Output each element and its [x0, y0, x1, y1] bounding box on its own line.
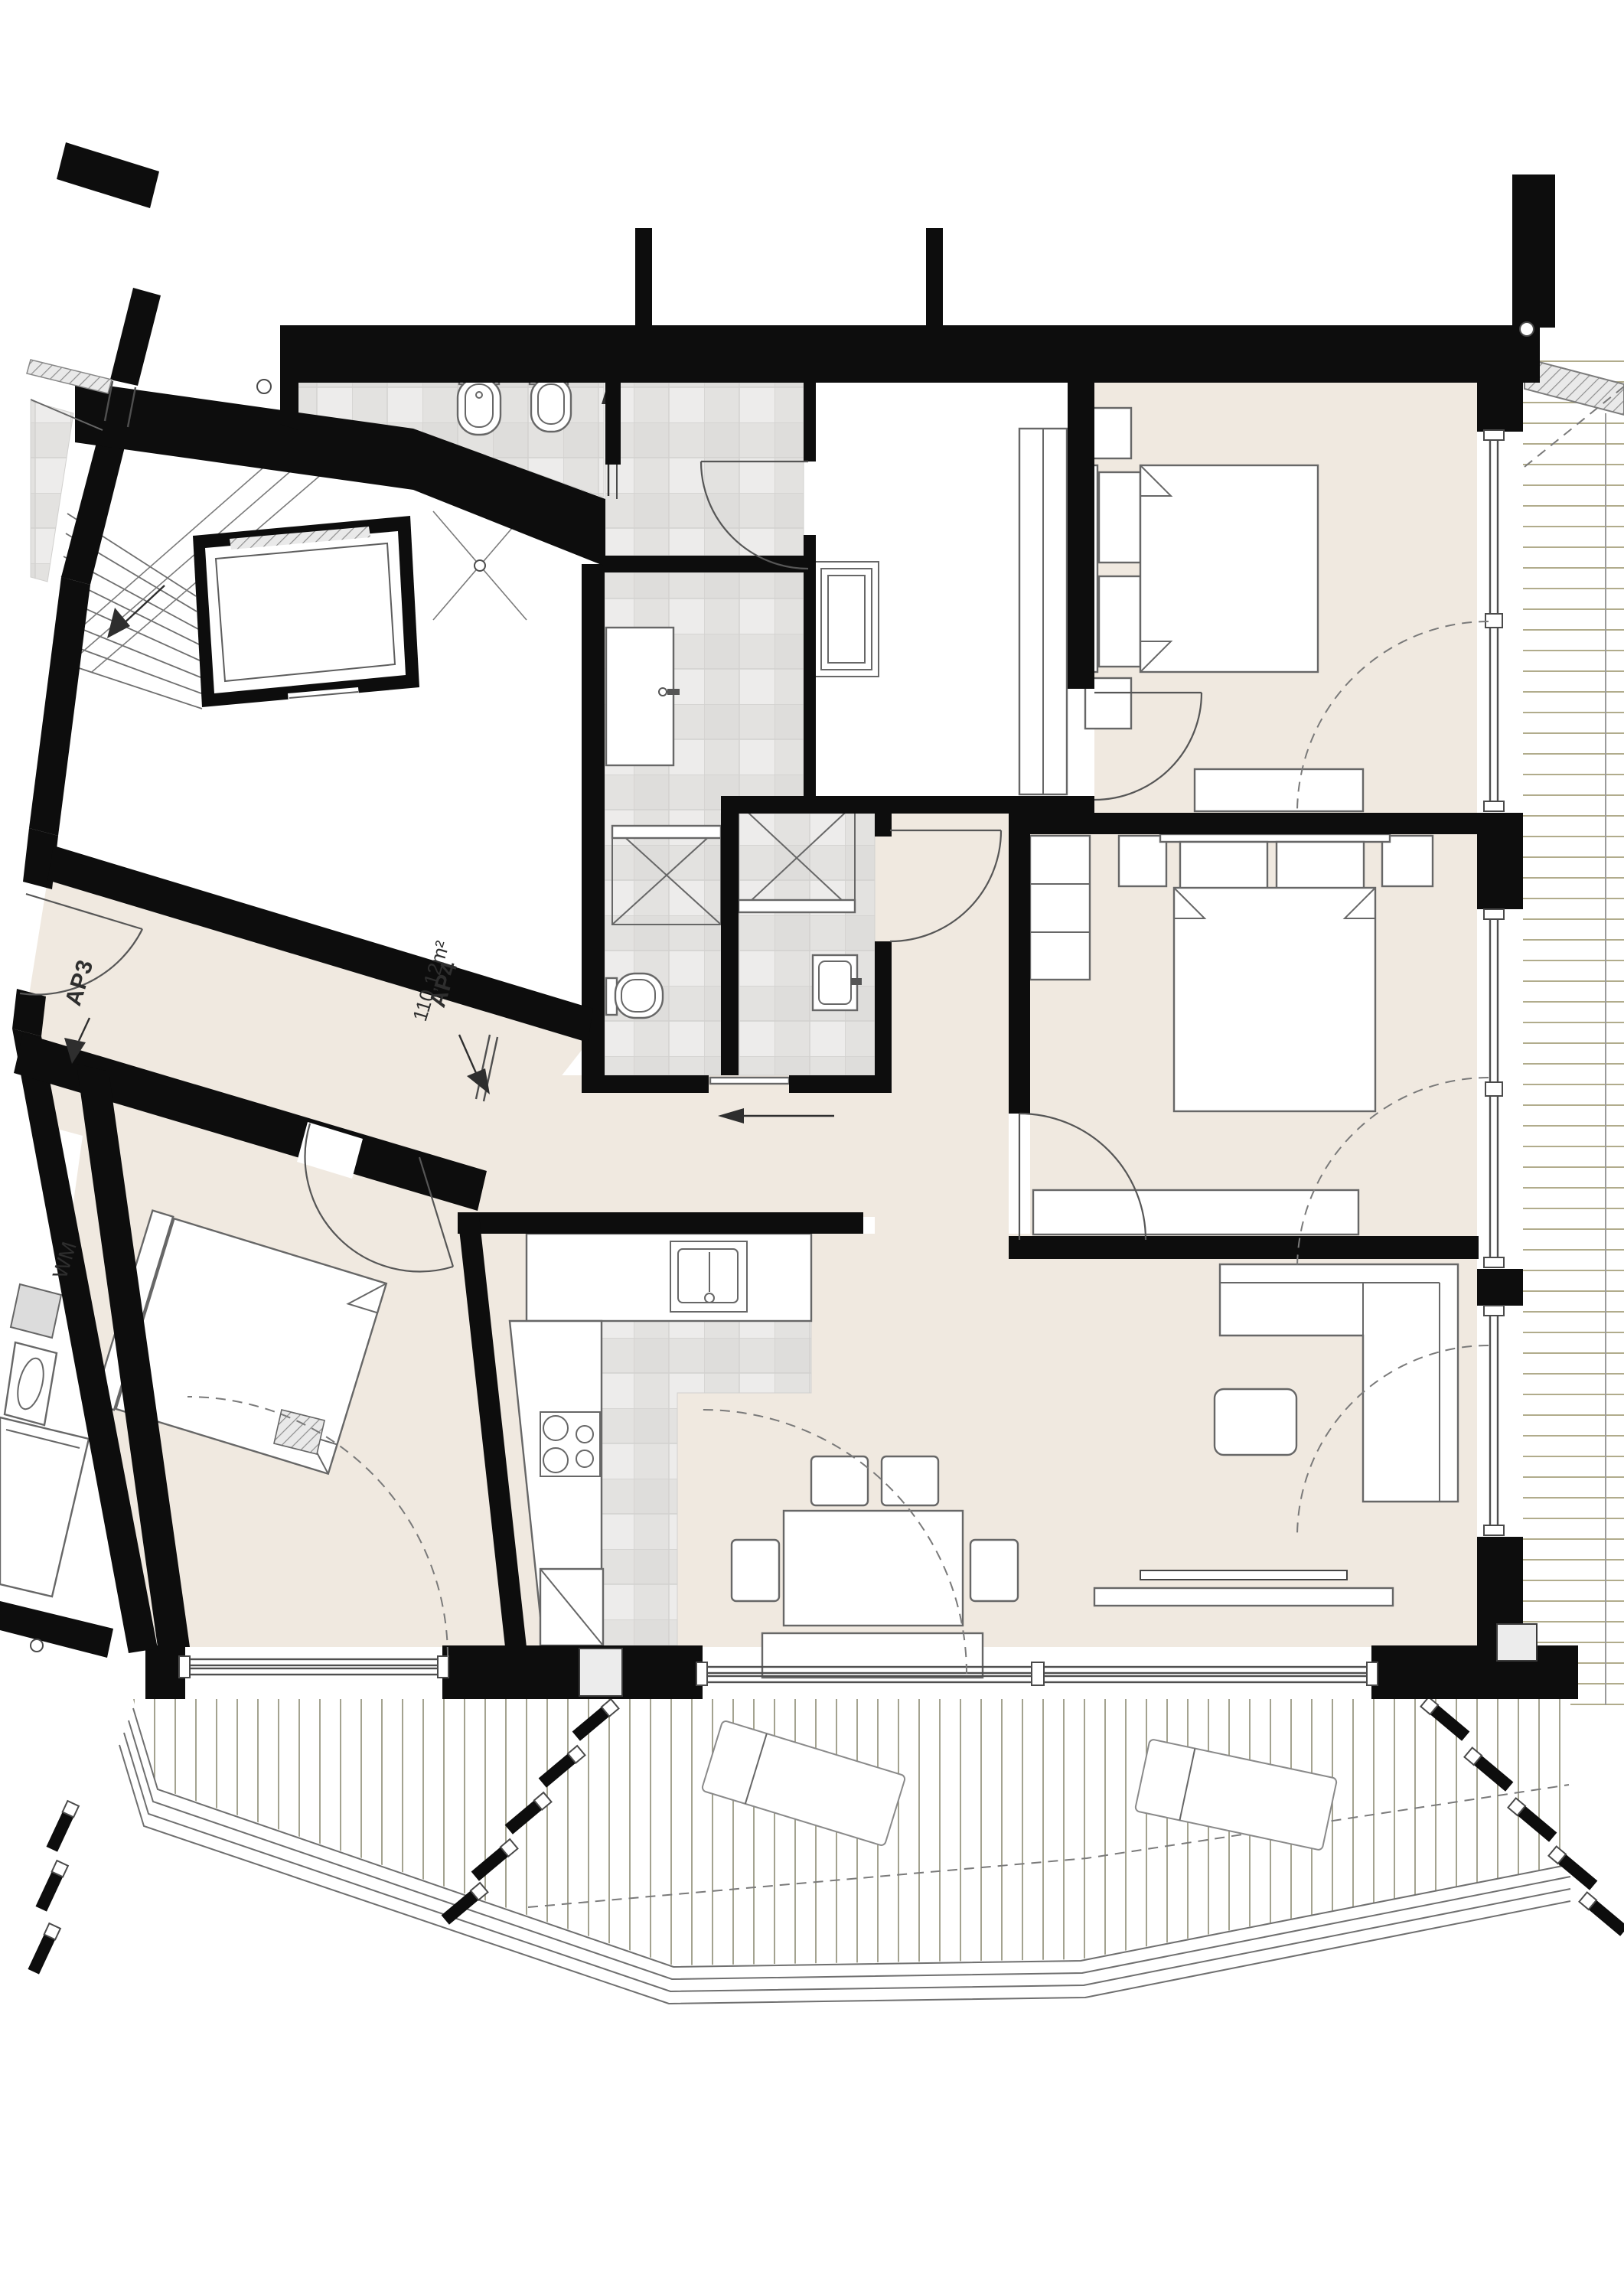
wing-wall	[57, 142, 159, 208]
tv-console	[1094, 1588, 1393, 1606]
bed-mattress	[1174, 888, 1375, 1111]
wc2-icon	[606, 974, 663, 1018]
top-wall-stub	[635, 228, 652, 328]
kitchen-counter-top	[527, 1234, 811, 1321]
axis-marker	[257, 380, 271, 393]
dresser	[1195, 769, 1363, 811]
elevator	[193, 516, 419, 710]
axis-marker	[31, 1639, 43, 1652]
walkin-bottom-wall	[721, 796, 1094, 814]
shower-right-wall	[875, 814, 892, 837]
bedroom1-left-wall	[1068, 383, 1094, 689]
top-wall-stub	[926, 228, 943, 328]
pillow	[1099, 472, 1140, 563]
bottom-wall-segment	[1371, 1645, 1578, 1699]
hall-floor	[875, 814, 1009, 1236]
tv-icon	[1140, 1570, 1347, 1580]
right-wall-segment	[1477, 813, 1523, 909]
sanitary-bottom-wall	[582, 1075, 709, 1093]
neighbor-bed-fragment	[0, 1417, 89, 1596]
coffee-table	[1215, 1389, 1296, 1455]
vanity-counter	[606, 628, 673, 765]
bath1-divider-wall	[605, 365, 621, 465]
nightstand	[1119, 836, 1166, 886]
pillow	[1099, 576, 1140, 667]
bath2-top-wall	[602, 556, 814, 572]
bedroom2-left-wall	[1009, 834, 1030, 1114]
dining-table	[784, 1511, 963, 1626]
bedroom2-bottom-wall	[1009, 1236, 1479, 1259]
dining-chair	[732, 1540, 779, 1601]
bottom-wall-segment	[442, 1645, 703, 1699]
bath2-left-wall	[582, 564, 605, 1075]
dining-chair	[811, 1456, 868, 1505]
vestibule-floor	[605, 383, 804, 556]
top-wall	[280, 325, 1540, 383]
top-right-block	[1512, 174, 1555, 328]
dining-chair	[970, 1540, 1018, 1601]
dining-bench	[762, 1633, 983, 1678]
wardrobe	[1030, 836, 1090, 980]
washbasin-icon	[813, 955, 862, 1010]
bed-headboard	[1160, 834, 1390, 842]
nightstand	[1382, 836, 1433, 886]
right-balcony-deck	[1523, 348, 1624, 1707]
floor-plan-drawing: AP3 AP4 110,12m² WM	[0, 0, 1624, 2296]
right-wall-segment	[1477, 1269, 1523, 1306]
column-hatch	[1497, 1624, 1537, 1661]
kitchen-wall	[458, 1212, 863, 1234]
neighbor-wall-fragment	[0, 1601, 113, 1658]
washing-machine-icon	[11, 1284, 61, 1338]
stair-void-marker	[474, 560, 485, 571]
axis-marker	[1520, 322, 1534, 336]
bedroom1-bottom-wall	[1009, 813, 1479, 834]
dining-chair	[882, 1456, 938, 1505]
walkin-left-wall	[804, 383, 816, 461]
shower-divider-wall	[721, 804, 739, 1075]
wing-outer-wall	[110, 288, 161, 386]
column-hatch	[579, 1649, 622, 1696]
floor-plan-page: AP3 AP4 110,12m² WM	[0, 0, 1624, 2296]
sideboard	[1033, 1190, 1358, 1234]
